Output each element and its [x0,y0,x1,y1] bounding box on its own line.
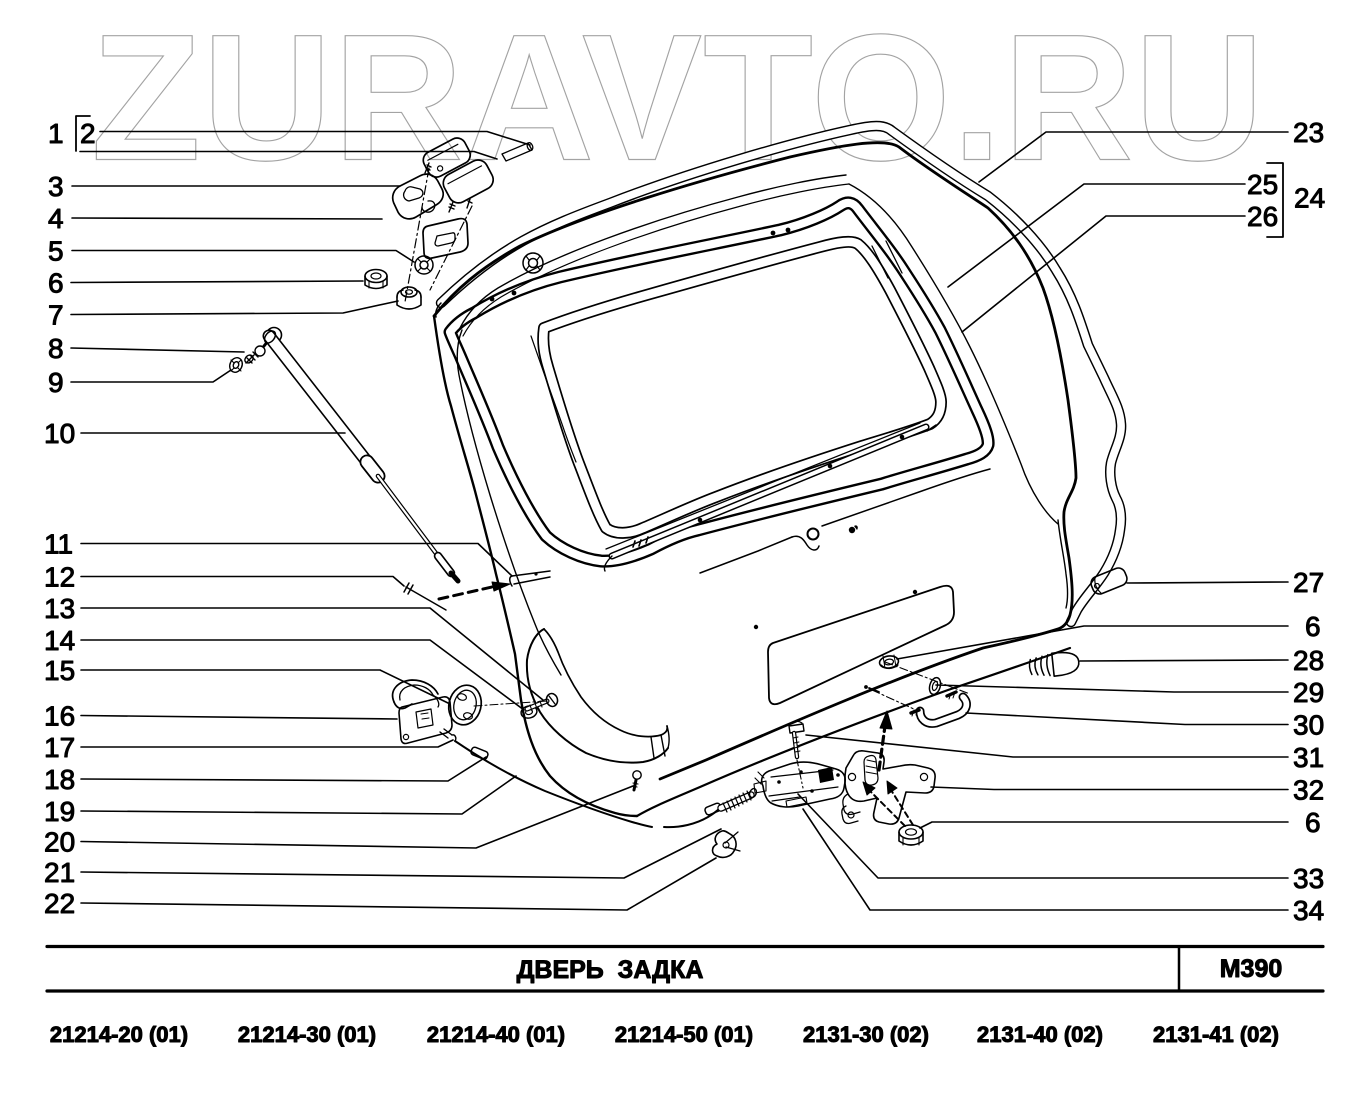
svg-text:22: 22 [44,888,75,919]
svg-text:21214-20 (01): 21214-20 (01) [50,1022,188,1047]
svg-text:29: 29 [1293,677,1324,708]
svg-text:25: 25 [1247,169,1278,200]
svg-text:6: 6 [48,268,64,299]
svg-text:4: 4 [48,203,64,234]
svg-text:16: 16 [44,701,75,732]
svg-text:8: 8 [48,333,64,364]
svg-text:32: 32 [1293,775,1324,806]
svg-text:18: 18 [44,764,75,795]
svg-text:2131-41 (02): 2131-41 (02) [1153,1022,1279,1047]
svg-text:31: 31 [1293,742,1324,773]
svg-text:26: 26 [1247,201,1278,232]
svg-text:9: 9 [48,367,64,398]
svg-text:21214-40 (01): 21214-40 (01) [427,1022,565,1047]
svg-text:27: 27 [1293,567,1324,598]
svg-text:14: 14 [44,625,75,656]
svg-text:20: 20 [44,827,75,858]
svg-text:6: 6 [1305,807,1321,838]
svg-text:3: 3 [48,171,64,202]
svg-text:13: 13 [44,593,75,624]
svg-text:21: 21 [44,857,75,888]
svg-text:ZURAVTO.RU: ZURAVTO.RU [91,0,1265,199]
svg-text:7: 7 [48,300,64,331]
svg-text:30: 30 [1293,710,1324,741]
svg-text:1: 1 [48,118,64,149]
svg-text:6: 6 [1305,611,1321,642]
svg-text:2: 2 [80,118,96,149]
svg-text:34: 34 [1293,895,1324,926]
svg-text:23: 23 [1293,117,1324,148]
svg-text:15: 15 [44,655,75,686]
svg-text:12: 12 [44,562,75,593]
svg-text:M390: M390 [1220,955,1283,983]
svg-text:24: 24 [1294,183,1325,214]
svg-text:10: 10 [44,418,75,449]
svg-text:2131-30 (02): 2131-30 (02) [803,1022,929,1047]
svg-text:ДВЕРЬ ЗАДКА: ДВЕРЬ ЗАДКА [517,956,704,984]
svg-text:33: 33 [1293,863,1324,894]
svg-text:5: 5 [48,236,64,267]
svg-text:2131-40 (02): 2131-40 (02) [977,1022,1103,1047]
svg-text:11: 11 [44,529,73,560]
svg-text:17: 17 [44,732,75,763]
svg-text:21214-50 (01): 21214-50 (01) [615,1022,753,1047]
svg-text:21214-30 (01): 21214-30 (01) [238,1022,376,1047]
svg-text:19: 19 [44,796,75,827]
svg-text:28: 28 [1293,645,1324,676]
